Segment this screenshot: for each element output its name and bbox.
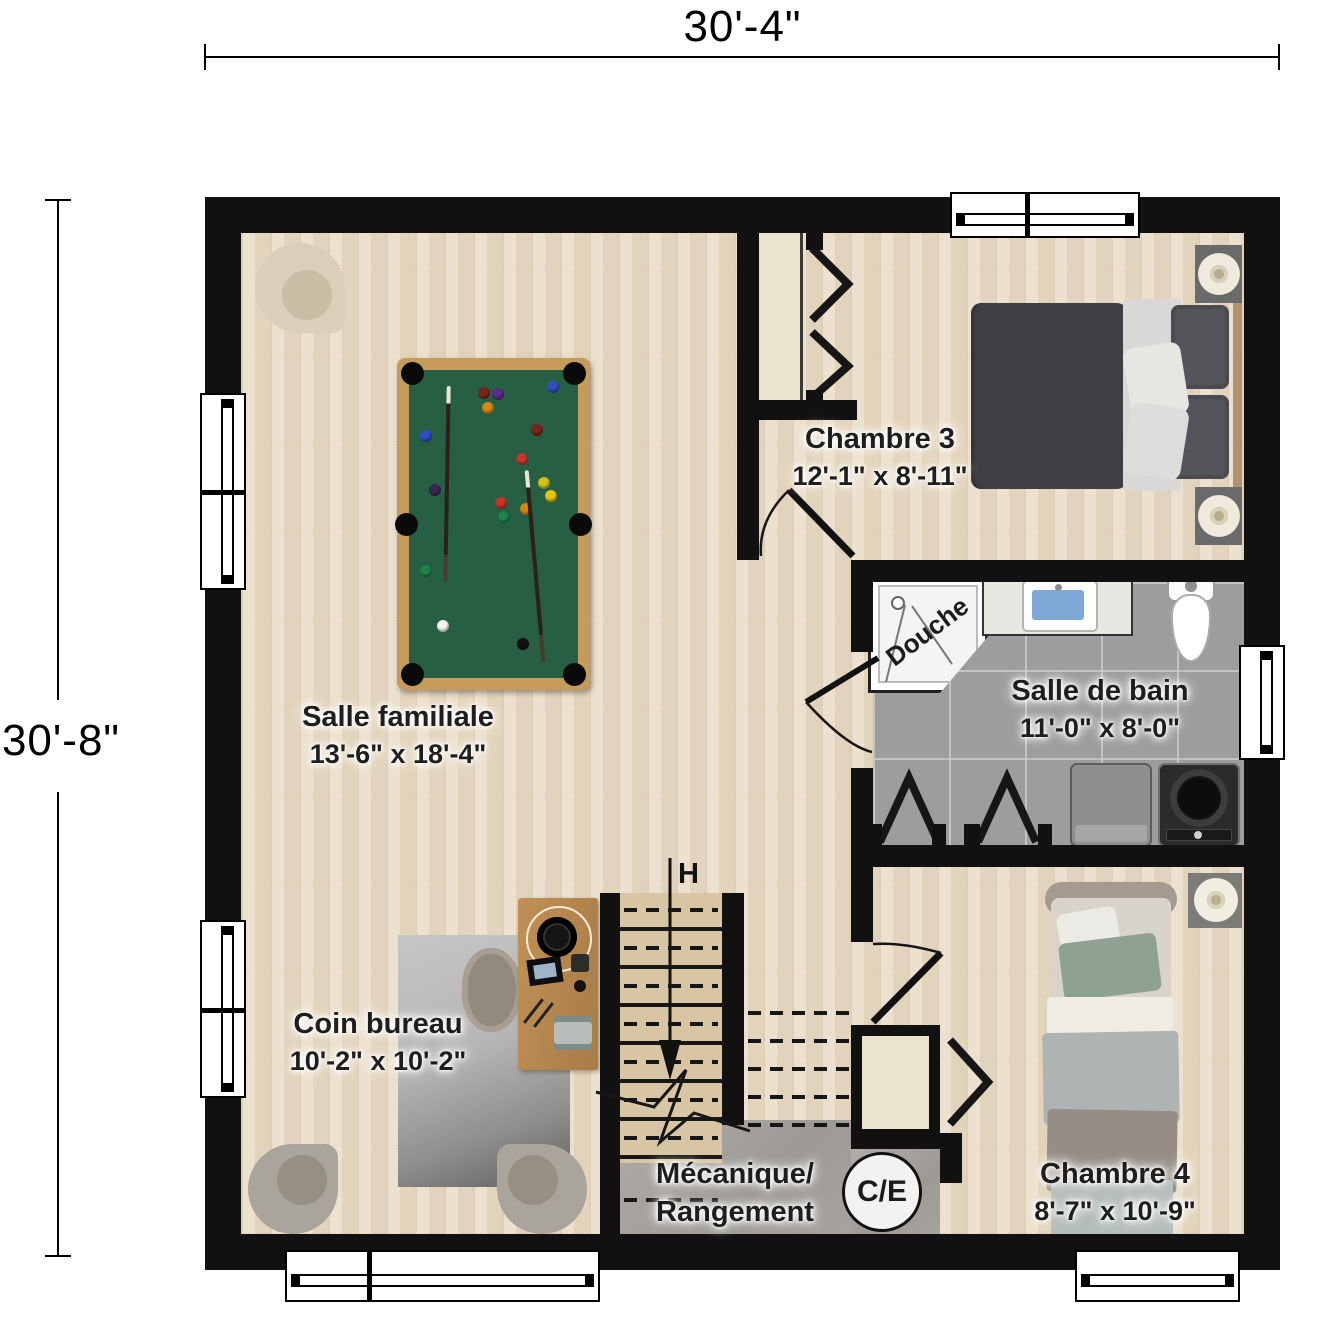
bathroom-wall-bottom — [851, 845, 1244, 867]
sink — [1022, 580, 1098, 632]
electrical-panel-circle: C/E — [842, 1152, 922, 1232]
room-name: Salle familiale — [278, 698, 518, 736]
room-size: 12'-1" x 8'-11" — [770, 458, 990, 494]
dimension-height-line — [57, 792, 59, 1257]
pool-ball — [547, 381, 559, 393]
staircase — [620, 893, 722, 1163]
pool-ball — [538, 477, 550, 489]
toilet-bowl — [1171, 594, 1211, 662]
washer-drum — [1170, 769, 1228, 827]
room-label-chambre3: Chambre 3 12'-1" x 8'-11" — [770, 420, 990, 494]
pool-pocket — [401, 663, 424, 686]
room-size: 13'-6" x 18'-4" — [278, 736, 518, 772]
dryer-door-band — [1075, 825, 1147, 842]
room-label-salle-de-bain: Salle de bain 11'-0" x 8'-0" — [985, 672, 1215, 746]
table-lamp-inner — [1210, 507, 1228, 525]
window — [950, 192, 1140, 238]
faucet — [1055, 584, 1062, 591]
pool-pocket — [395, 513, 418, 536]
room-name: Salle de bain — [985, 672, 1215, 710]
electrical-panel-label: C/E — [857, 1175, 907, 1209]
hall-wall — [851, 867, 873, 942]
pool-ball — [495, 497, 507, 509]
closet — [759, 233, 803, 400]
stair-wall-right — [722, 893, 744, 1125]
armchair-seat — [277, 1155, 327, 1205]
pool-ball — [429, 484, 441, 496]
desk-gadget — [571, 954, 589, 972]
double-bed — [975, 293, 1245, 498]
exterior-wall-left — [205, 197, 241, 1270]
washer-controls — [1166, 829, 1232, 841]
closet — [851, 1025, 940, 1140]
nightstand — [1195, 245, 1242, 303]
room-label-mecanique: Mécanique/ Rangement — [630, 1155, 840, 1231]
pool-ball — [492, 388, 504, 400]
duvet — [975, 303, 1127, 489]
dimension-tick — [45, 199, 71, 201]
pool-table-felt — [409, 370, 578, 678]
photo — [533, 963, 557, 980]
window-divider — [202, 490, 244, 495]
room-size: 10'-2" x 10'-2" — [263, 1043, 493, 1079]
window — [200, 393, 246, 590]
window-glass — [294, 1274, 591, 1287]
window — [200, 920, 246, 1098]
dimension-height-line — [57, 200, 59, 700]
pool-ball — [482, 402, 494, 414]
floor-plan: 30'-4" 30'-8" — [0, 0, 1336, 1332]
washer — [1158, 763, 1240, 847]
headboard — [1233, 299, 1242, 491]
hall-wall — [851, 1133, 940, 1149]
pool-ball — [531, 424, 543, 436]
window-glass — [1084, 1274, 1231, 1287]
eight-ball — [517, 638, 529, 650]
dimension-tick — [45, 1255, 71, 1257]
interior-wall — [737, 233, 759, 560]
stair-direction-label: H — [678, 858, 699, 891]
window — [285, 1250, 600, 1302]
nightstand — [1188, 873, 1242, 928]
pool-ball — [498, 511, 510, 523]
room-name: Coin bureau — [263, 1005, 493, 1043]
bathroom-wall-left — [851, 560, 873, 652]
pillow — [1058, 932, 1162, 1002]
pool-ball — [545, 490, 557, 502]
room-name: Mécanique/ — [630, 1155, 840, 1193]
toilet — [1167, 572, 1215, 664]
dimension-width-line — [205, 56, 1280, 58]
room-name: Rangement — [630, 1193, 840, 1231]
table-lamp-inner — [1207, 891, 1225, 909]
pool-ball — [516, 453, 528, 465]
lounge-armchair — [497, 1144, 587, 1234]
room-name: Chambre 3 — [770, 420, 990, 458]
dimension-height-label: 30'-8" — [0, 716, 122, 766]
room-label-chambre4: Chambre 4 8'-7" x 10'-9" — [1000, 1155, 1230, 1229]
table-lamp-inner — [1210, 265, 1228, 283]
washer-knob — [1194, 831, 1202, 839]
desk-caddy — [554, 1016, 592, 1050]
window-glass — [1260, 654, 1273, 751]
picture-frame — [526, 956, 563, 986]
window-divider — [202, 1008, 244, 1013]
pool-pocket — [569, 513, 592, 536]
desk-lamp — [537, 917, 577, 957]
dimension-tick — [204, 44, 206, 70]
window — [1239, 645, 1285, 760]
room-name: Chambre 4 — [1000, 1155, 1230, 1193]
dimension-width-label: 30'-4" — [205, 2, 1280, 52]
room-label-salle-familiale: Salle familiale 13'-6" x 18'-4" — [278, 698, 518, 772]
stair-wall-left — [600, 893, 620, 1234]
pool-pocket — [401, 362, 424, 385]
bathroom-wall-top — [851, 560, 1244, 582]
desk — [518, 898, 598, 1070]
armchair-seat — [508, 1155, 558, 1205]
dryer — [1070, 763, 1152, 847]
room-size: 8'-7" x 10'-9" — [1000, 1193, 1230, 1229]
sink-basin — [1032, 590, 1084, 620]
pool-table — [397, 358, 590, 690]
hall-wall — [940, 1133, 962, 1183]
interior-wall — [737, 400, 857, 420]
cue-ball — [437, 620, 449, 632]
pool-pocket — [563, 362, 586, 385]
desk-knob — [574, 980, 586, 992]
window — [1075, 1250, 1240, 1302]
pillow — [1122, 401, 1191, 481]
pool-ball — [478, 387, 490, 399]
pool-ball — [420, 430, 432, 442]
window-divider — [367, 1252, 372, 1300]
corner-armchair — [255, 243, 345, 333]
nightstand — [1195, 487, 1242, 545]
pool-pocket — [563, 663, 586, 686]
window-glass — [959, 213, 1131, 226]
room-label-coin-bureau: Coin bureau 10'-2" x 10'-2" — [263, 1005, 493, 1079]
window-divider — [1025, 194, 1030, 236]
room-size: 11'-0" x 8'-0" — [985, 710, 1215, 746]
dimension-tick — [1278, 44, 1280, 70]
lounge-armchair — [248, 1144, 338, 1234]
pool-ball — [420, 565, 432, 577]
